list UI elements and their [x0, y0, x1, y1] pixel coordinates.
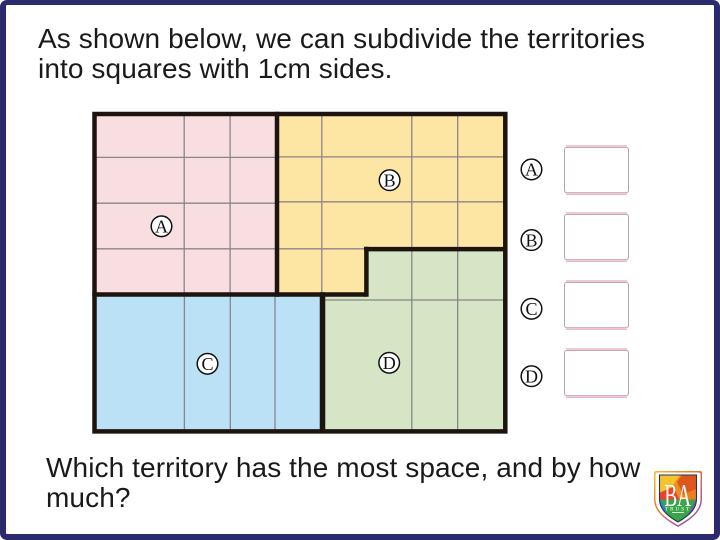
- svg-text:TRUST: TRUST: [665, 506, 691, 512]
- svg-text:A: A: [155, 217, 168, 237]
- svg-text:D: D: [525, 367, 538, 387]
- svg-text:A: A: [525, 160, 538, 180]
- svg-text:D: D: [383, 353, 396, 373]
- svg-text:C: C: [201, 354, 213, 374]
- svg-text:C: C: [525, 299, 537, 319]
- svg-text:B: B: [384, 171, 396, 191]
- svg-text:B: B: [525, 230, 537, 250]
